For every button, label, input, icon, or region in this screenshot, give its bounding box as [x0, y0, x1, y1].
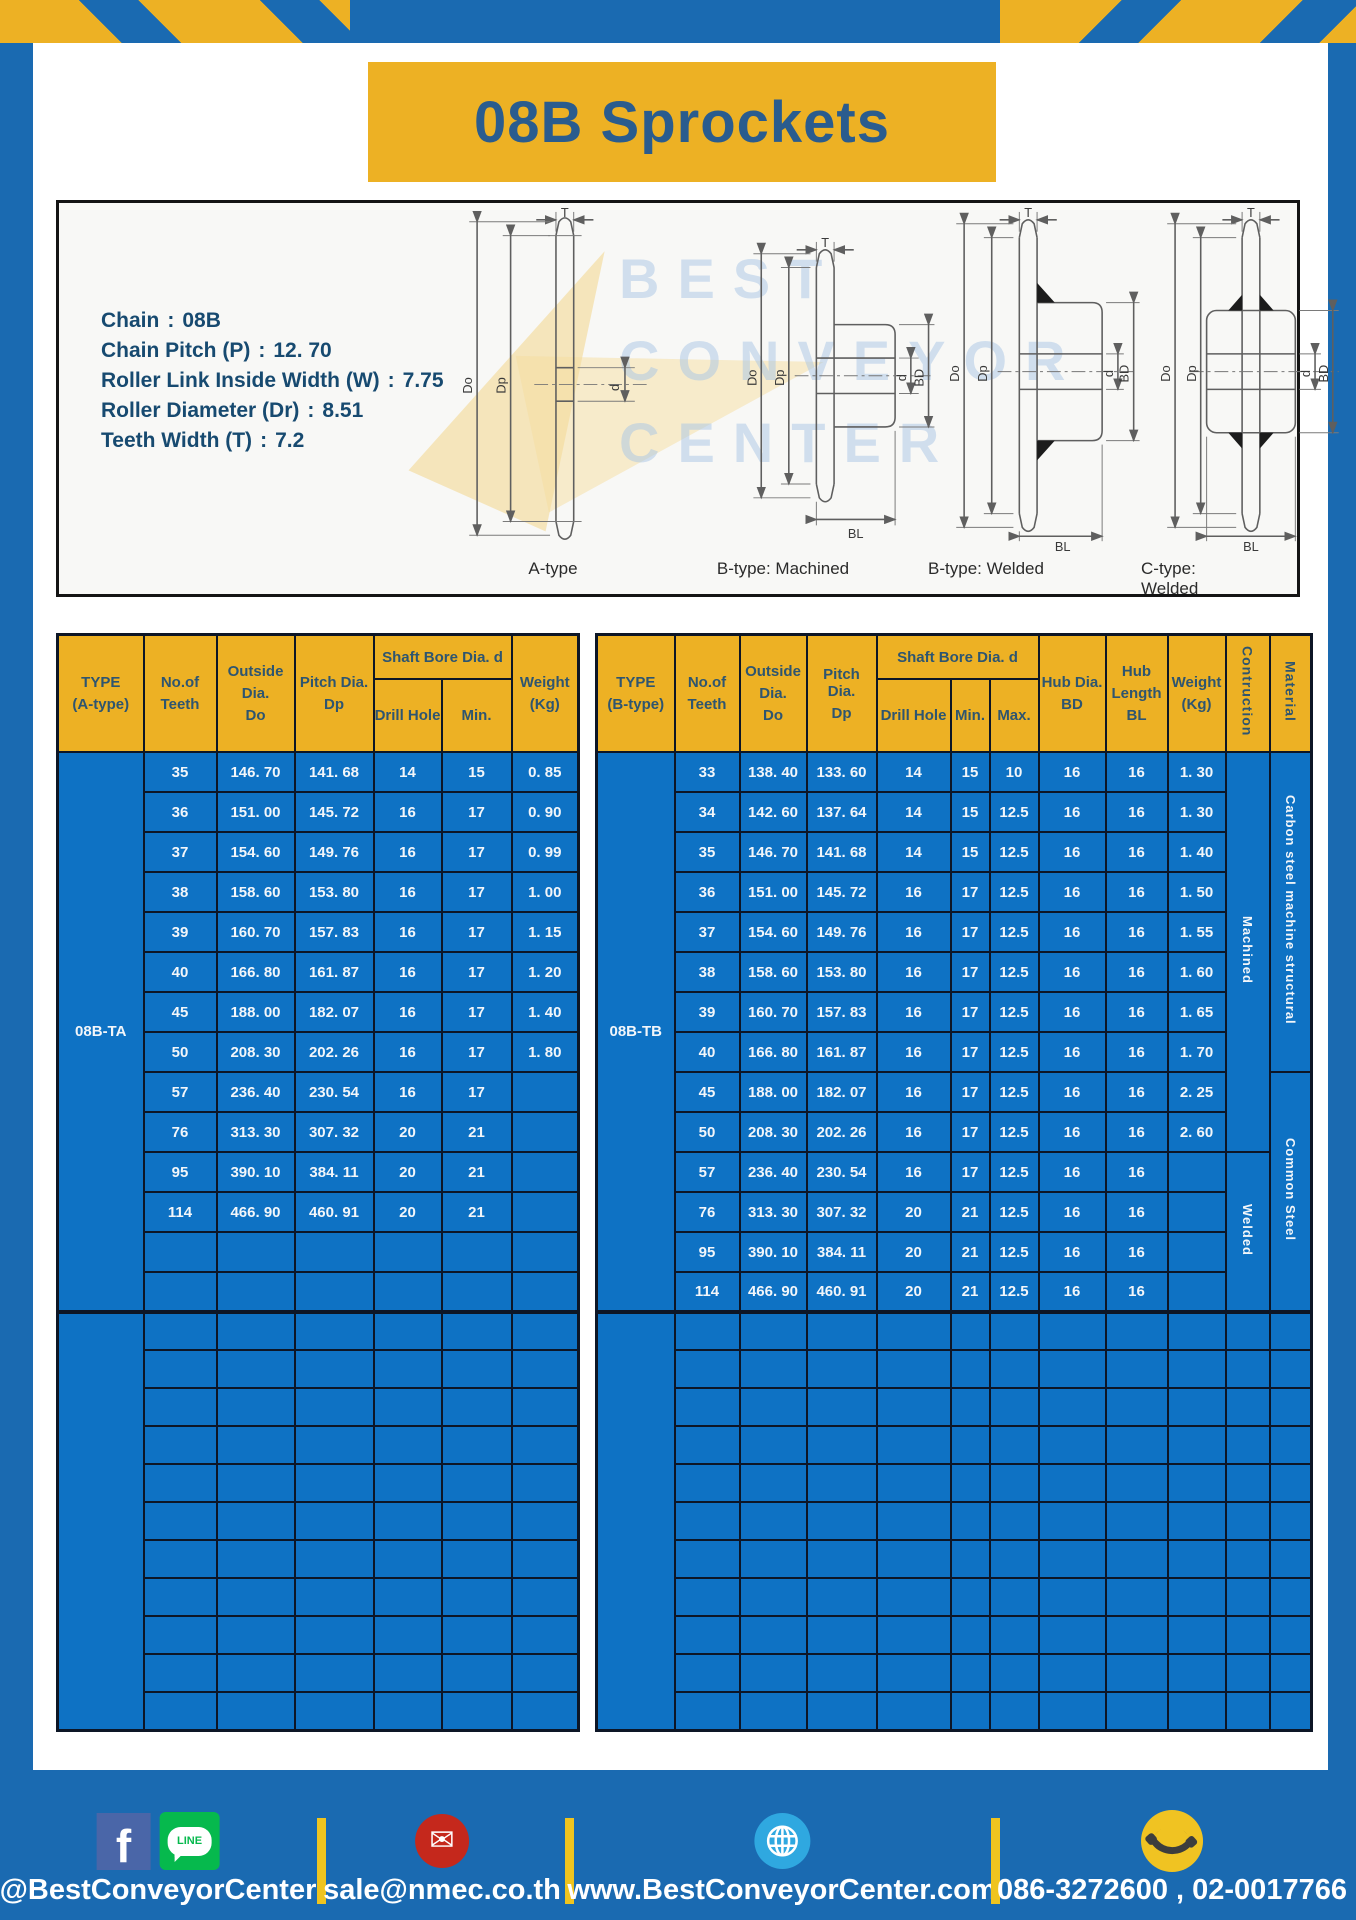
- table-cell: [374, 1426, 442, 1464]
- table-cell: 14: [374, 752, 442, 792]
- table-cell: [877, 1502, 951, 1540]
- table-cell: [740, 1350, 807, 1388]
- table-cell: [675, 1464, 740, 1502]
- table-row: 38158. 60153. 80161712.516161. 60: [597, 952, 1312, 992]
- table-cell: 230. 54: [807, 1152, 877, 1192]
- c-type-welded-drawing: T Do Dp d BD BL: [1144, 208, 1354, 553]
- table-cell: 16: [877, 1032, 951, 1072]
- table-cell: [512, 1112, 579, 1152]
- table-cell: 38: [675, 952, 740, 992]
- table-cell: [807, 1578, 877, 1616]
- table-cell: 188. 00: [740, 1072, 807, 1112]
- a-type-table: TYPE(A-type) No.ofTeeth OutsideDia.Do Pi…: [56, 633, 580, 1732]
- type-cell: [58, 1312, 144, 1730]
- table-cell: [740, 1502, 807, 1540]
- table-cell: [990, 1312, 1039, 1350]
- table-cell: [990, 1654, 1039, 1692]
- table-cell: [374, 1616, 442, 1654]
- table-cell: [1168, 1540, 1226, 1578]
- table-cell: 12.5: [990, 1032, 1039, 1072]
- table-cell: 16: [1106, 912, 1168, 952]
- table-cell: [295, 1502, 374, 1540]
- table-cell: 17: [951, 1152, 990, 1192]
- table-cell: 57: [675, 1152, 740, 1192]
- table-cell: 95: [144, 1152, 217, 1192]
- table-cell: 146. 70: [740, 832, 807, 872]
- a-type-drawing: T Do Dp d: [438, 208, 668, 553]
- table-cell: 460. 91: [807, 1272, 877, 1312]
- col-header-min: Min.: [951, 679, 990, 752]
- b-type-table: TYPE(B-type) No.ofTeeth OutsideDia.Do Pi…: [595, 633, 1313, 1732]
- table-cell: 16: [1039, 1072, 1106, 1112]
- table-cell: [951, 1654, 990, 1692]
- table-cell: [1168, 1464, 1226, 1502]
- chain-specs: Chain:08B Chain Pitch (P):12. 70 Roller …: [101, 303, 461, 459]
- table-cell: [374, 1388, 442, 1426]
- table-cell: [877, 1350, 951, 1388]
- table-cell: [512, 1272, 579, 1312]
- table-cell: 313. 30: [740, 1192, 807, 1232]
- table-cell: 16: [1106, 1232, 1168, 1272]
- table-cell: [740, 1540, 807, 1578]
- table-cell: 384. 11: [807, 1232, 877, 1272]
- table-cell: 15: [442, 752, 512, 792]
- table-cell: 182. 07: [295, 992, 374, 1032]
- table-cell: [1106, 1464, 1168, 1502]
- material-cell: Carbon steel machine structural: [1270, 752, 1312, 1072]
- table-cell: 34: [675, 792, 740, 832]
- table-cell: [442, 1578, 512, 1616]
- table-cell: [1270, 1388, 1312, 1426]
- table-cell: [144, 1502, 217, 1540]
- mail-icon[interactable]: ✉: [415, 1814, 469, 1868]
- footer-email: ✉ sale@nmec.co.th: [323, 1812, 561, 1907]
- table-cell: 21: [951, 1192, 990, 1232]
- dim-label-BL: BL: [848, 526, 864, 541]
- table-cell: 17: [442, 1072, 512, 1112]
- table-cell: [877, 1312, 951, 1350]
- table-cell: 17: [951, 1072, 990, 1112]
- table-cell: 16: [1106, 1072, 1168, 1112]
- dim-label-Do: Do: [460, 377, 475, 393]
- table-cell: 390. 10: [217, 1152, 295, 1192]
- table-cell: 154. 60: [740, 912, 807, 952]
- table-cell: 17: [951, 952, 990, 992]
- table-cell: 17: [951, 992, 990, 1032]
- table-cell: [1106, 1540, 1168, 1578]
- table-cell: 38: [144, 872, 217, 912]
- table-cell: [442, 1692, 512, 1730]
- table-cell: 1. 50: [1168, 872, 1226, 912]
- table-cell: [144, 1616, 217, 1654]
- dim-label-d: d: [1298, 370, 1313, 377]
- table-row: 08B-TB33138. 40133. 6014151016161. 30Mac…: [597, 752, 1312, 792]
- table-cell: [1270, 1540, 1312, 1578]
- table-cell: 1. 15: [512, 912, 579, 952]
- drawing-label-b-machined: B-type: Machined: [717, 559, 849, 579]
- phone-numbers[interactable]: 086-3272600 , 02-0017766: [997, 1874, 1347, 1907]
- table-cell: [877, 1426, 951, 1464]
- table-cell: [675, 1540, 740, 1578]
- table-cell: 50: [675, 1112, 740, 1152]
- table-cell: 16: [1106, 1192, 1168, 1232]
- table-cell: [1168, 1502, 1226, 1540]
- table-row: 35146. 70141. 68141512.516161. 40: [597, 832, 1312, 872]
- table-cell: [1039, 1312, 1106, 1350]
- table-cell: 16: [1106, 1112, 1168, 1152]
- table-cell: [877, 1654, 951, 1692]
- table-cell: [1039, 1502, 1106, 1540]
- table-cell: [1039, 1692, 1106, 1730]
- table-cell: [512, 1350, 579, 1388]
- table-cell: 16: [1039, 1152, 1106, 1192]
- table-row: 76313. 30307. 32202112.51616: [597, 1192, 1312, 1232]
- table-cell: 114: [144, 1192, 217, 1232]
- social-handle[interactable]: @BestConveyorCenter: [0, 1874, 316, 1907]
- table-cell: [1039, 1654, 1106, 1692]
- table-cell: [990, 1502, 1039, 1540]
- table-cell: 21: [442, 1112, 512, 1152]
- table-cell: [1106, 1312, 1168, 1350]
- table-cell: 20: [877, 1192, 951, 1232]
- col-header-hub-length: HubLengthBL: [1106, 635, 1168, 753]
- diagram-panel: BEST CONVEYOR CENTER Chain:08B Chain Pit…: [56, 200, 1300, 597]
- table-cell: 114: [675, 1272, 740, 1312]
- table-cell: 12.5: [990, 992, 1039, 1032]
- table-cell: 76: [144, 1112, 217, 1152]
- table-cell: [1168, 1232, 1226, 1272]
- table-row: 57236. 40230. 54161712.51616Welded: [597, 1152, 1312, 1192]
- drawing-label-a-type: A-type: [528, 559, 577, 579]
- dim-label-Dp: Dp: [975, 365, 990, 381]
- table-cell: 16: [1039, 792, 1106, 832]
- table-cell: [374, 1540, 442, 1578]
- table-cell: 16: [1106, 952, 1168, 992]
- table-cell: [990, 1388, 1039, 1426]
- table-cell: [1106, 1350, 1168, 1388]
- table-cell: 202. 26: [295, 1032, 374, 1072]
- catalog-page: 08B Sprockets BEST CONVEYOR CENTER Chain…: [0, 0, 1356, 1920]
- table-cell: 36: [675, 872, 740, 912]
- table-cell: [675, 1692, 740, 1730]
- table-cell: [295, 1232, 374, 1272]
- table-cell: 33: [675, 752, 740, 792]
- table-cell: [217, 1350, 295, 1388]
- table-cell: [1168, 1692, 1226, 1730]
- table-cell: [512, 1502, 579, 1540]
- table-cell: [374, 1464, 442, 1502]
- footer-phone: 086-3272600 , 02-0017766: [997, 1812, 1347, 1907]
- table-cell: 14: [877, 752, 951, 792]
- table-cell: [1226, 1654, 1270, 1692]
- table-cell: 20: [374, 1112, 442, 1152]
- table-cell: 12.5: [990, 832, 1039, 872]
- table-cell: [217, 1272, 295, 1312]
- table-cell: [951, 1502, 990, 1540]
- table-cell: [675, 1616, 740, 1654]
- table-cell: [442, 1388, 512, 1426]
- table-cell: 1. 00: [512, 872, 579, 912]
- table-cell: 12.5: [990, 912, 1039, 952]
- email-address[interactable]: sale@nmec.co.th: [323, 1874, 561, 1907]
- table-cell: [374, 1654, 442, 1692]
- table-cell: [374, 1350, 442, 1388]
- table-cell: 460. 91: [295, 1192, 374, 1232]
- table-cell: [295, 1540, 374, 1578]
- table-cell: [1270, 1654, 1312, 1692]
- table-cell: [1168, 1616, 1226, 1654]
- table-cell: 236. 40: [217, 1072, 295, 1112]
- table-cell: [1270, 1692, 1312, 1730]
- table-cell: [512, 1192, 579, 1232]
- table-cell: [990, 1464, 1039, 1502]
- table-cell: [951, 1388, 990, 1426]
- table-cell: 12.5: [990, 792, 1039, 832]
- table-cell: 16: [1106, 752, 1168, 792]
- table-cell: [512, 1072, 579, 1112]
- dim-label-Dp: Dp: [494, 377, 509, 393]
- table-row: [597, 1692, 1312, 1730]
- table-cell: 307. 32: [295, 1112, 374, 1152]
- drawing-label-c-welded: C-type: Welded: [1141, 559, 1245, 599]
- table-cell: [442, 1312, 512, 1350]
- table-cell: 15: [951, 752, 990, 792]
- table-cell: 313. 30: [217, 1112, 295, 1152]
- table-cell: [295, 1388, 374, 1426]
- table-cell: [217, 1616, 295, 1654]
- table-cell: 145. 72: [295, 792, 374, 832]
- table-row: [597, 1502, 1312, 1540]
- table-cell: [144, 1232, 217, 1272]
- table-cell: [807, 1692, 877, 1730]
- table-cell: [1270, 1578, 1312, 1616]
- table-cell: [1106, 1654, 1168, 1692]
- table-cell: 16: [1106, 832, 1168, 872]
- col-header-outside-dia: OutsideDia.Do: [217, 635, 295, 753]
- footer-social: f LINE @BestConveyorCenter: [0, 1812, 316, 1907]
- hazard-stripes-right: [1000, 0, 1356, 43]
- table-cell: [740, 1464, 807, 1502]
- table-cell: 16: [1106, 1272, 1168, 1312]
- table-cell: 37: [675, 912, 740, 952]
- line-icon[interactable]: LINE: [160, 1812, 220, 1870]
- table-cell: [990, 1692, 1039, 1730]
- table-cell: [217, 1232, 295, 1272]
- table-cell: 21: [951, 1232, 990, 1272]
- table-cell: 2. 25: [1168, 1072, 1226, 1112]
- table-cell: [512, 1152, 579, 1192]
- table-cell: [295, 1654, 374, 1692]
- table-cell: 39: [675, 992, 740, 1032]
- table-cell: 16: [1039, 752, 1106, 792]
- table-cell: [144, 1692, 217, 1730]
- table-cell: 230. 54: [295, 1072, 374, 1112]
- dim-label-Dp: Dp: [1184, 365, 1199, 381]
- table-cell: 1. 40: [512, 992, 579, 1032]
- dim-label-Do: Do: [947, 365, 962, 381]
- table-cell: 153. 80: [807, 952, 877, 992]
- table-cell: [1226, 1540, 1270, 1578]
- table-cell: 16: [1039, 1232, 1106, 1272]
- table-cell: 17: [442, 872, 512, 912]
- table-row: [597, 1426, 1312, 1464]
- table-cell: [512, 1464, 579, 1502]
- col-header-drill-hole: Drill Hole: [877, 679, 951, 752]
- table-cell: [512, 1312, 579, 1350]
- spec-roller-link-width: Roller Link Inside Width (W):7.75: [101, 369, 461, 393]
- table-cell: 157. 83: [807, 992, 877, 1032]
- table-cell: [1270, 1426, 1312, 1464]
- facebook-icon[interactable]: f: [97, 1813, 151, 1870]
- table-cell: 188. 00: [217, 992, 295, 1032]
- globe-icon[interactable]: [754, 1813, 810, 1869]
- col-header-shaft-bore: Shaft Bore Dia. d: [877, 635, 1039, 680]
- table-row: [58, 1312, 579, 1350]
- table-cell: 161. 87: [295, 952, 374, 992]
- table-cell: [442, 1350, 512, 1388]
- table-cell: 37: [144, 832, 217, 872]
- table-cell: [512, 1426, 579, 1464]
- table-cell: 1. 40: [1168, 832, 1226, 872]
- table-cell: [374, 1578, 442, 1616]
- table-cell: [807, 1388, 877, 1426]
- table-cell: 16: [374, 832, 442, 872]
- website-url[interactable]: www.BestConveyorCenter.com: [567, 1874, 996, 1907]
- type-cell: 08B-TA: [58, 752, 144, 1312]
- table-cell: [990, 1350, 1039, 1388]
- table-cell: [217, 1464, 295, 1502]
- table-cell: 182. 07: [807, 1072, 877, 1112]
- table-cell: 307. 32: [807, 1192, 877, 1232]
- table-cell: [512, 1388, 579, 1426]
- table-cell: [295, 1578, 374, 1616]
- col-header-max: Max.: [990, 679, 1039, 752]
- table-cell: [1039, 1388, 1106, 1426]
- table-cell: [1270, 1312, 1312, 1350]
- table-cell: [217, 1654, 295, 1692]
- table-cell: [1270, 1464, 1312, 1502]
- table-cell: 137. 64: [807, 792, 877, 832]
- table-cell: 20: [374, 1152, 442, 1192]
- table-cell: 166. 80: [217, 952, 295, 992]
- dim-label-BD: BD: [1316, 365, 1331, 383]
- table-cell: [807, 1616, 877, 1654]
- table-cell: 36: [144, 792, 217, 832]
- table-cell: [1226, 1502, 1270, 1540]
- col-header-type: TYPE(B-type): [597, 635, 675, 753]
- table-cell: 1. 20: [512, 952, 579, 992]
- table-cell: [807, 1350, 877, 1388]
- table-cell: 21: [951, 1272, 990, 1312]
- table-cell: 16: [374, 1072, 442, 1112]
- spec-chain-pitch: Chain Pitch (P):12. 70: [101, 339, 461, 363]
- table-cell: [295, 1312, 374, 1350]
- table-cell: 142. 60: [740, 792, 807, 832]
- table-cell: 16: [374, 792, 442, 832]
- table-cell: [990, 1578, 1039, 1616]
- table-cell: [144, 1312, 217, 1350]
- table-row: [597, 1654, 1312, 1692]
- spec-teeth-width: Teeth Width (T):7.2: [101, 429, 461, 453]
- table-cell: 17: [951, 1032, 990, 1072]
- table-cell: [951, 1464, 990, 1502]
- table-cell: [217, 1540, 295, 1578]
- table-cell: [675, 1578, 740, 1616]
- table-cell: 138. 40: [740, 752, 807, 792]
- table-cell: [295, 1616, 374, 1654]
- table-cell: [951, 1426, 990, 1464]
- type-cell: 08B-TB: [597, 752, 675, 1312]
- table-cell: 1. 30: [1168, 752, 1226, 792]
- table-row: 37154. 60149. 76161712.516161. 55: [597, 912, 1312, 952]
- table-cell: [1039, 1350, 1106, 1388]
- phone-icon[interactable]: [1141, 1810, 1203, 1872]
- table-cell: [1168, 1426, 1226, 1464]
- table-cell: 40: [144, 952, 217, 992]
- table-cell: 20: [877, 1232, 951, 1272]
- top-hazard-band: [0, 0, 1356, 43]
- table-cell: 12.5: [990, 952, 1039, 992]
- hazard-stripes-left: [0, 0, 350, 43]
- table-cell: 1. 80: [512, 1032, 579, 1072]
- table-cell: 16: [1039, 832, 1106, 872]
- table-cell: 16: [1106, 792, 1168, 832]
- col-header-pitch-dia: Pitch Dia.Dp: [807, 635, 877, 753]
- dim-label-d: d: [894, 374, 909, 381]
- col-header-weight: Weight(Kg): [1168, 635, 1226, 753]
- table-cell: 50: [144, 1032, 217, 1072]
- col-header-pitch-dia: Pitch Dia.Dp: [295, 635, 374, 753]
- footer-website: www.BestConveyorCenter.com: [567, 1812, 996, 1907]
- table-cell: 12.5: [990, 1112, 1039, 1152]
- table-cell: 16: [374, 872, 442, 912]
- table-cell: 149. 76: [295, 832, 374, 872]
- table-cell: [144, 1540, 217, 1578]
- table-cell: [951, 1692, 990, 1730]
- table-cell: 16: [374, 912, 442, 952]
- table-cell: [442, 1616, 512, 1654]
- table-cell: [807, 1540, 877, 1578]
- table-cell: [1226, 1426, 1270, 1464]
- dim-label-T: T: [1247, 208, 1255, 220]
- table-cell: [217, 1578, 295, 1616]
- table-cell: 17: [442, 792, 512, 832]
- table-cell: 76: [675, 1192, 740, 1232]
- table-row: 34142. 60137. 64141512.516161. 30: [597, 792, 1312, 832]
- table-cell: 39: [144, 912, 217, 952]
- table-cell: 15: [951, 832, 990, 872]
- table-cell: [1106, 1692, 1168, 1730]
- dim-label-T: T: [821, 238, 829, 250]
- table-cell: [512, 1540, 579, 1578]
- table-cell: [675, 1654, 740, 1692]
- table-cell: 21: [442, 1192, 512, 1232]
- table-cell: [1106, 1578, 1168, 1616]
- dim-label-BD: BD: [1117, 365, 1132, 383]
- table-cell: [951, 1578, 990, 1616]
- table-cell: [374, 1502, 442, 1540]
- dim-label-BL: BL: [1055, 539, 1071, 553]
- table-cell: [951, 1312, 990, 1350]
- table-row: 50208. 30202. 26161712.516162. 60: [597, 1112, 1312, 1152]
- table-cell: [1168, 1312, 1226, 1350]
- table-cell: [442, 1272, 512, 1312]
- table-cell: [877, 1692, 951, 1730]
- table-cell: 1. 30: [1168, 792, 1226, 832]
- table-cell: [217, 1388, 295, 1426]
- table-cell: 466. 90: [217, 1192, 295, 1232]
- table-cell: 12.5: [990, 1272, 1039, 1312]
